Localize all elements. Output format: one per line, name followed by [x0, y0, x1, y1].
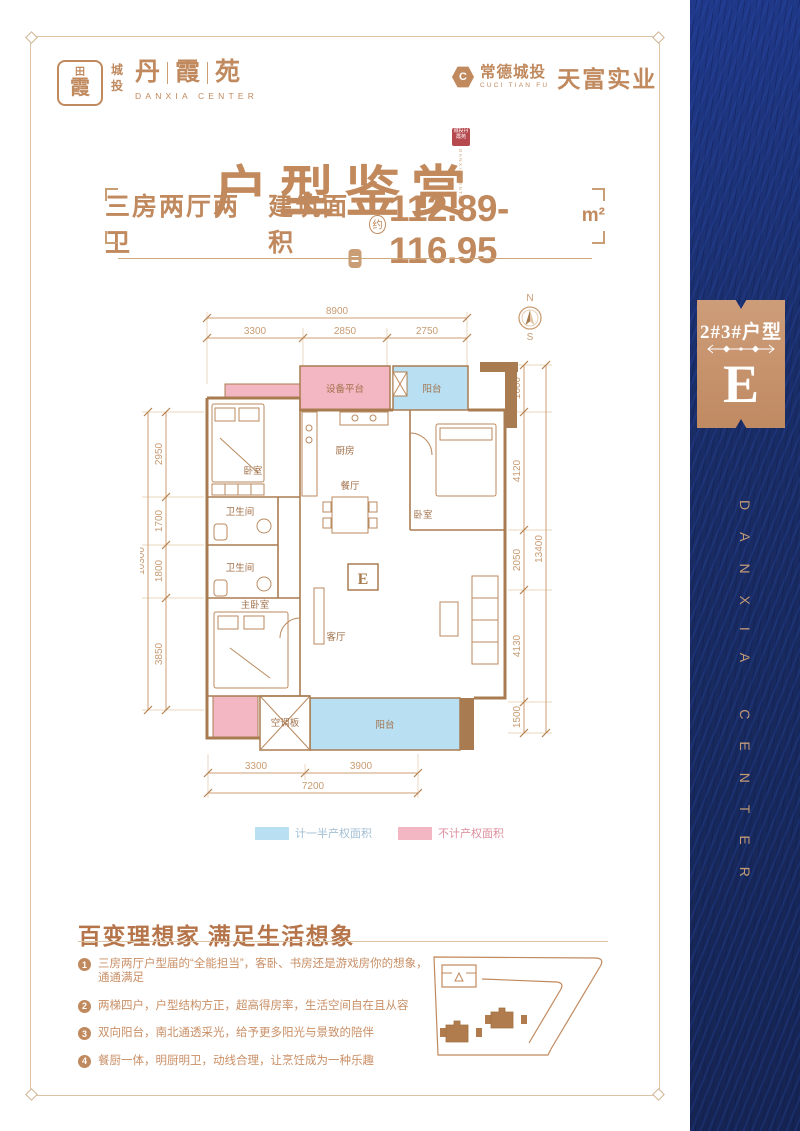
- building-3-highlighted: [440, 1021, 482, 1042]
- developer-subtitle: CUCI TIAN FU: [480, 83, 549, 90]
- dim-right-5: 1500: [512, 705, 523, 728]
- bracket-icon: [105, 231, 118, 244]
- dim-top-1: 3300: [244, 326, 267, 337]
- spec-divider: [118, 258, 592, 259]
- building-2-highlighted: [485, 1008, 527, 1028]
- feature-number-icon: 3: [78, 1027, 91, 1040]
- basin: [257, 519, 271, 533]
- unit-badge: 2#3#户型 E: [697, 300, 785, 428]
- brand-char: 苑: [215, 60, 240, 85]
- room-ac: 空调板: [271, 717, 300, 729]
- dim-left-3: 1800: [154, 559, 165, 582]
- svg-text:N: N: [526, 293, 533, 304]
- brand-seal-icon: 田 霞: [57, 60, 103, 106]
- building-1-outline: [442, 965, 476, 987]
- coffee-table: [440, 602, 458, 636]
- dim-left-overall: 10300: [140, 547, 147, 575]
- dim-bottom-2: 3900: [350, 761, 373, 772]
- poster-page: 2#3#户型 E DANXIA CENTER 田 霞 城投 丹: [0, 0, 800, 1131]
- wall-chunk: [480, 362, 518, 372]
- door-arc: [280, 618, 300, 638]
- seal-main-char: 霞: [70, 78, 90, 98]
- brand-char: 丹: [135, 60, 160, 85]
- brand-separator: [207, 62, 208, 84]
- tv-cabinet: [314, 588, 324, 644]
- badge-title: 2#3#户型: [700, 317, 782, 344]
- brand-small-label: 城投: [111, 63, 126, 94]
- dim-right-4: 4130: [512, 634, 523, 657]
- room-living: 客厅: [326, 631, 346, 643]
- toilet: [214, 524, 227, 540]
- pink-strip-top: [225, 384, 300, 398]
- door-arc: [410, 433, 432, 455]
- developer-name-2: 天富实业: [557, 60, 657, 94]
- title-stamp-icon: 城投丹霞苑: [452, 128, 470, 146]
- developer-hex-icon: C: [452, 66, 474, 88]
- features-heading: 百变理想家 满足生活想象: [78, 917, 355, 951]
- feature-text: 双向阳台，南北通透采光，给予更多阳光与景致的陪伴: [98, 1026, 374, 1040]
- spec-area-label: 建筑面积: [268, 187, 359, 259]
- pink-strip-bottom: [213, 696, 258, 738]
- wall-chunk: [460, 698, 474, 750]
- feature-item: 3 双向阳台，南北通透采光，给予更多阳光与景致的陪伴: [78, 1026, 430, 1040]
- room-bedroom-r: 卧室: [413, 509, 432, 521]
- frame-corner-icon: [25, 1088, 38, 1101]
- spec-banner: 三房两厅两卫 建筑面积 约 112.89-116.95 m²: [105, 188, 605, 244]
- sidebar-vertical-brand: DANXIA CENTER: [737, 500, 753, 899]
- dim-top-3: 2750: [416, 326, 439, 337]
- legend-pink-label: 不计产权面积: [438, 825, 504, 841]
- brand-name: 丹 霞 苑: [135, 60, 258, 85]
- dim-right-3: 2050: [512, 548, 523, 571]
- room-bath-2: 卫生间: [226, 562, 255, 574]
- feature-number-icon: 1: [78, 958, 91, 971]
- room-equipment: 设备平台: [326, 383, 364, 395]
- svg-text:S: S: [527, 332, 534, 343]
- compass-icon: N S: [519, 293, 541, 343]
- dim-left-1: 2950: [154, 442, 165, 465]
- unit-label: E: [358, 571, 369, 588]
- divider-ornament-icon: [349, 249, 362, 268]
- frame-corner-icon: [652, 31, 665, 44]
- feature-item: 4 餐厨一体，明厨明卫，动线合理，让烹饪成为一种乐趣: [78, 1054, 430, 1068]
- floorplan-zones: [213, 366, 474, 750]
- badge-divider-icon: [704, 344, 778, 354]
- dim-top-2: 2850: [334, 326, 357, 337]
- bracket-icon: [592, 231, 605, 244]
- feature-text: 两梯四户，户型结构方正，超高得房率，生活空间自在且从容: [98, 999, 409, 1013]
- bracket-icon: [592, 188, 605, 201]
- dim-bottom-overall: 7200: [302, 781, 325, 792]
- approx-circle-icon: 约: [369, 215, 385, 234]
- feature-item: 2 两梯四户，户型结构方正，超高得房率，生活空间自在且从容: [78, 999, 430, 1013]
- dim-bottom-1: 3300: [245, 761, 268, 772]
- developer-logo: C 常德城投 CUCI TIAN FU 天富实业: [452, 60, 657, 94]
- wall-chunk: [505, 372, 517, 428]
- dining-table: [332, 497, 368, 533]
- brand-char: 霞: [175, 60, 200, 85]
- sidebar: 2#3#户型 E DANXIA CENTER: [690, 0, 800, 1131]
- badge-unit-letter: E: [723, 356, 759, 413]
- dim-right-overall: 13400: [534, 535, 545, 563]
- dim-left-2: 1700: [154, 509, 165, 532]
- brand-subtitle: DANXIA CENTER: [135, 91, 258, 101]
- feature-text: 三房两厅户型届的“全能担当”，客卧、书房还是游戏房你的想象，通通满足: [98, 957, 430, 986]
- basin: [257, 577, 271, 591]
- dim-left-4: 3850: [154, 642, 165, 665]
- room-bath-1: 卫生间: [226, 506, 255, 518]
- spec-area-value: 112.89-116.95: [389, 188, 582, 272]
- bracket-icon: [105, 188, 118, 201]
- legend-blue-swatch: [255, 827, 289, 840]
- room-balcony-bottom: 阳台: [375, 719, 394, 731]
- room-master: 主卧室: [241, 599, 270, 611]
- furniture: [212, 404, 498, 688]
- dim-right-2: 4120: [512, 459, 523, 482]
- floorplan: 8900 3300 2850 2750 10300 2950 1700 1800…: [140, 288, 580, 833]
- room-balcony-top: 阳台: [422, 383, 441, 395]
- legend-pink-swatch: [398, 827, 432, 840]
- legend-blue-label: 计一半产权面积: [295, 825, 372, 841]
- developer-name: 常德城投: [480, 65, 549, 81]
- spec-rooms: 三房两厅两卫: [105, 187, 242, 259]
- room-dining: 餐厅: [340, 480, 360, 492]
- toilet: [214, 580, 227, 596]
- feature-number-icon: 2: [78, 1000, 91, 1013]
- spec-area-unit: m²: [582, 205, 605, 227]
- brand-separator: [167, 62, 168, 84]
- bed: [214, 612, 288, 688]
- feature-item: 1 三房两厅户型届的“全能担当”，客卧、书房还是游戏房你的想象，通通满足: [78, 957, 430, 986]
- interior-walls: [207, 398, 505, 696]
- features-list: 1 三房两厅户型届的“全能担当”，客卧、书房还是游戏房你的想象，通通满足 2 两…: [78, 957, 430, 1081]
- room-kitchen: 厨房: [335, 445, 354, 457]
- brand-logo: 田 霞 城投 丹 霞 苑 DANXIA CENTER: [57, 60, 258, 106]
- siteplan: [424, 935, 616, 1070]
- feature-text: 餐厨一体，明厨明卫，动线合理，让烹饪成为一种乐趣: [98, 1054, 374, 1068]
- feature-number-icon: 4: [78, 1055, 91, 1068]
- bed: [436, 424, 496, 496]
- room-bedroom-tl: 卧室: [243, 465, 262, 477]
- site-inner-road: [482, 979, 562, 1043]
- legend: 计一半产权面积 不计产权面积: [255, 825, 504, 841]
- brand-main: 丹 霞 苑 DANXIA CENTER: [135, 60, 258, 101]
- frame-corner-icon: [25, 31, 38, 44]
- frame-corner-icon: [652, 1088, 665, 1101]
- dim-top-overall: 8900: [326, 306, 349, 317]
